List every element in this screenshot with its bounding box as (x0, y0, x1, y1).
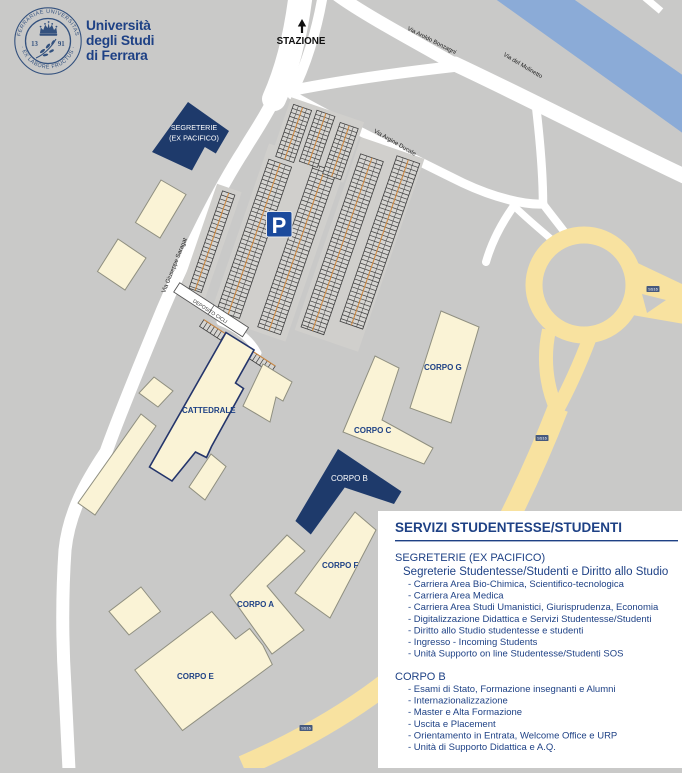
svg-text:- Unità Supporto on line Stude: - Unità Supporto on line Studentesse/Stu… (408, 649, 623, 660)
svg-text:- Carriera Area Medica: - Carriera Area Medica (408, 591, 504, 602)
svg-text:CORPO G: CORPO G (424, 363, 462, 372)
svg-text:degli Studi: degli Studi (86, 33, 154, 48)
svg-text:CORPO F: CORPO F (322, 561, 359, 570)
svg-text:SS16: SS16 (648, 287, 659, 292)
svg-text:P: P (272, 213, 287, 238)
svg-text:CORPO C: CORPO C (354, 426, 392, 435)
svg-text:CORPO B: CORPO B (395, 671, 446, 683)
svg-text:- Orientamento in Entrata, Wel: - Orientamento in Entrata, Welcome Offic… (408, 730, 617, 741)
svg-text:SEGRETERIE: SEGRETERIE (171, 123, 218, 132)
svg-text:- Uscita e Placement: - Uscita e Placement (408, 719, 496, 730)
svg-text:CATTEDRALE: CATTEDRALE (182, 406, 236, 415)
svg-text:SERVIZI STUDENTESSE/STUDENTI: SERVIZI STUDENTESSE/STUDENTI (395, 520, 622, 535)
svg-text:CORPO E: CORPO E (177, 672, 215, 681)
svg-text:STAZIONE: STAZIONE (277, 36, 326, 47)
svg-text:SEGRETERIE (EX PACIFICO): SEGRETERIE (EX PACIFICO) (395, 552, 545, 564)
svg-text:13: 13 (31, 41, 38, 48)
svg-text:- Unità di Supporto Didattica: - Unità di Supporto Didattica e A.Q. (408, 742, 556, 753)
svg-text:di Ferrara: di Ferrara (86, 48, 148, 63)
svg-text:- Digitalizzazione Didattica e: - Digitalizzazione Didattica e Servizi S… (408, 614, 651, 625)
svg-text:- Carriera Area Studi Umanisti: - Carriera Area Studi Umanistici, Giuris… (408, 602, 659, 613)
svg-text:- Ingresso - Incoming Students: - Ingresso - Incoming Students (408, 637, 538, 648)
svg-text:- Diritto allo Studio studente: - Diritto allo Studio studentesse e stud… (408, 625, 583, 636)
svg-text:SS16: SS16 (301, 726, 312, 731)
svg-text:91: 91 (58, 41, 65, 48)
svg-text:- Internazionalizzazione: - Internazionalizzazione (408, 696, 508, 707)
svg-text:(EX PACIFICO): (EX PACIFICO) (169, 134, 219, 143)
svg-text:CORPO A: CORPO A (237, 600, 274, 609)
svg-text:- Master e Alta Formazione: - Master e Alta Formazione (408, 707, 522, 718)
svg-text:Università: Università (86, 18, 151, 33)
svg-text:CORPO B: CORPO B (331, 474, 368, 483)
svg-text:- Carriera Area Bio-Chimica, S: - Carriera Area Bio-Chimica, Scientifico… (408, 579, 625, 590)
svg-text:SS16: SS16 (537, 436, 548, 441)
svg-text:- Esami di Stato, Formazione i: - Esami di Stato, Formazione insegnanti … (408, 684, 616, 695)
svg-text:Segreterie Studentesse/Student: Segreterie Studentesse/Studenti e Diritt… (403, 566, 668, 578)
